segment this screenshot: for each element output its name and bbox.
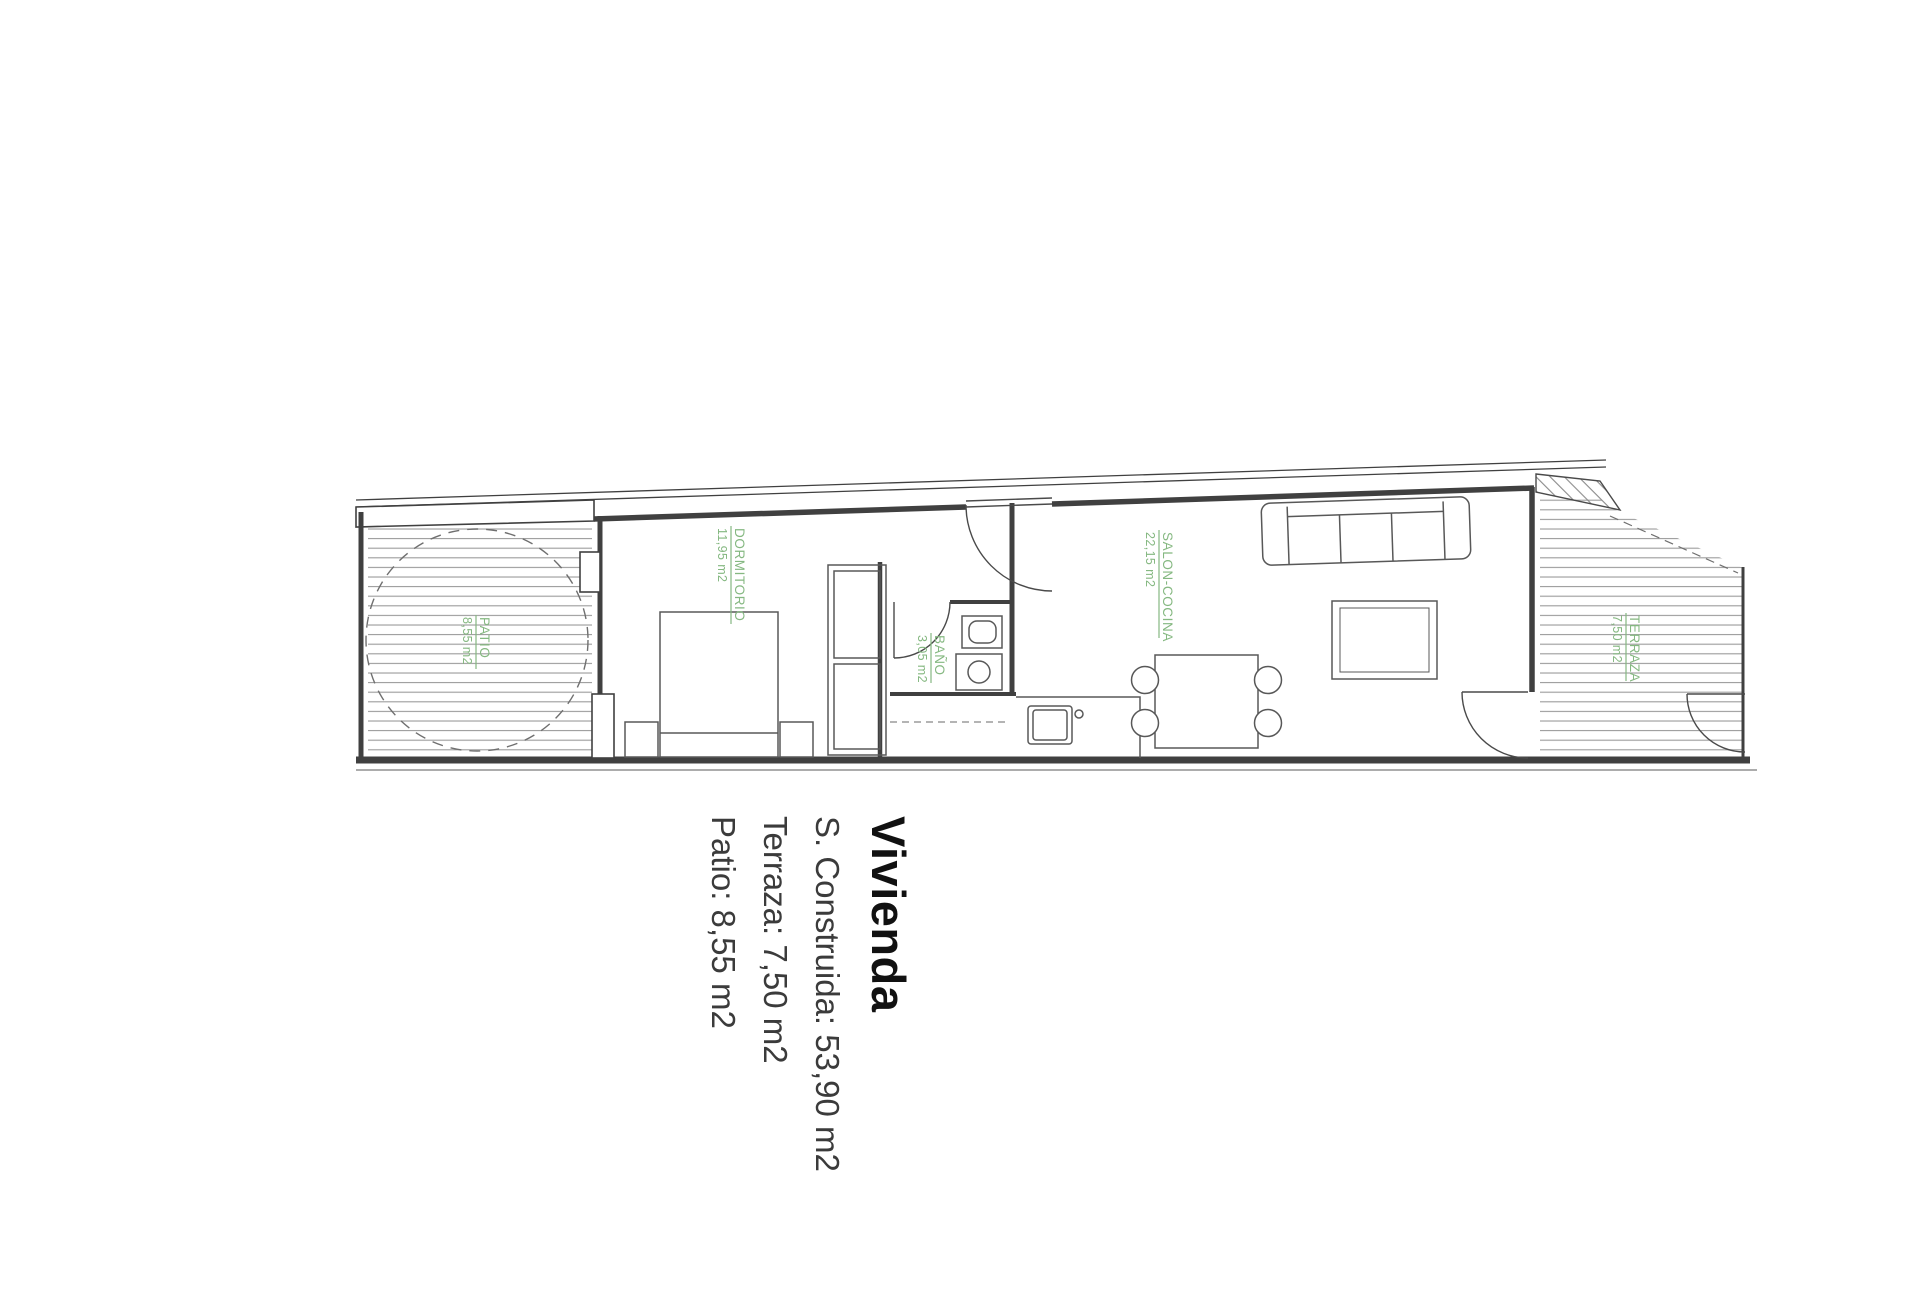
furniture: [625, 497, 1471, 758]
room-name: PATIO: [477, 617, 492, 659]
room-name: TERRAZA: [1627, 615, 1642, 682]
terraza-door-arc: [1462, 692, 1528, 758]
coffee-table: [1332, 601, 1437, 679]
floor-plan: PATIO 8,55 m2 DORMITORIO 11,95 m2 BAÑO 3…: [0, 0, 1920, 1280]
room-area: 11,95 m2: [715, 528, 729, 582]
room-area: 22,15 m2: [1143, 532, 1157, 587]
room-name: BAÑO: [932, 635, 947, 676]
room-label-salon-cocina: SALON-COCINA 22,15 m2: [1143, 530, 1175, 642]
room-area: 8,55 m2: [460, 617, 474, 665]
faucet: [1075, 710, 1083, 718]
chair: [1132, 710, 1159, 737]
summary-patio-area: Patio: 8,55 m2: [697, 816, 749, 1316]
room-area: 3,05 m2: [915, 635, 929, 683]
top-wall-left: [594, 507, 966, 519]
chair: [1255, 667, 1282, 694]
entrance-door: [966, 498, 1052, 591]
summary-terraza-area: Terraza: 7,50 m2: [749, 816, 801, 1316]
nightstand-right: [780, 722, 813, 757]
entrance-door-arc: [966, 505, 1052, 591]
plan-title: Vivienda: [859, 816, 917, 1316]
chair: [1132, 667, 1159, 694]
patio-wall-step: [580, 552, 600, 592]
chair: [1255, 710, 1282, 737]
kitchen-counter: [1016, 697, 1140, 758]
toilet: [962, 616, 1002, 648]
room-name: SALON-COCINA: [1160, 532, 1175, 642]
summary-built-area: S. Construida: 53,90 m2: [801, 816, 853, 1316]
nightstand-left: [625, 722, 658, 757]
top-wall-right: [1052, 488, 1534, 504]
patio-wall-pillar: [592, 694, 614, 758]
room-name: DORMITORIO: [732, 528, 747, 622]
room-labels: PATIO 8,55 m2 DORMITORIO 11,95 m2 BAÑO 3…: [460, 526, 1642, 683]
bed: [660, 612, 778, 757]
room-label-bano: BAÑO 3,05 m2: [915, 633, 947, 683]
sofa: [1261, 497, 1471, 566]
terraza-door: [1462, 692, 1528, 758]
plan-summary: Vivienda S. Construida: 53,90 m2 Terraza…: [697, 816, 917, 1316]
room-label-dormitorio: DORMITORIO 11,95 m2: [715, 526, 747, 624]
wardrobe: [828, 565, 886, 755]
terraza-hatch: [1536, 474, 1743, 752]
dining-table: [1132, 655, 1282, 748]
floor-plan-page: { "title": "Vivienda", "summary": [ "S. …: [0, 0, 1920, 1280]
room-area: 7,50 m2: [1610, 615, 1624, 663]
kitchen-sink: [1033, 710, 1067, 740]
washbasin: [956, 654, 1002, 690]
